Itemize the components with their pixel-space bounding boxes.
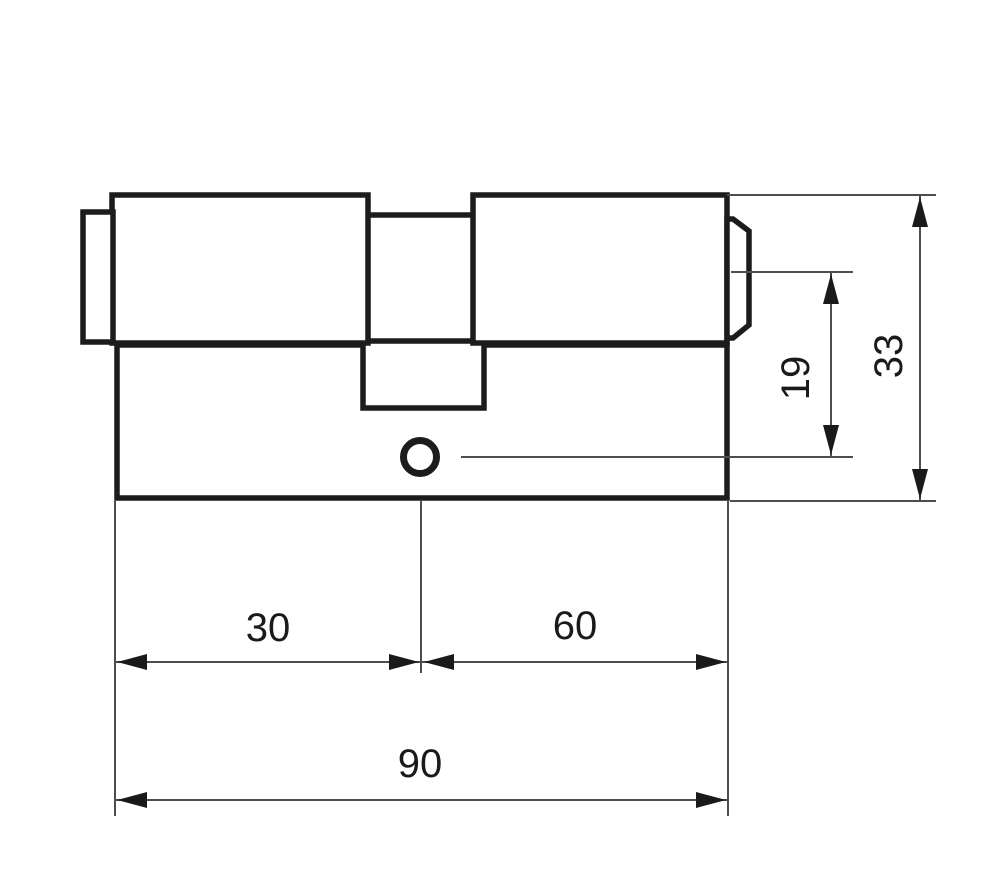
right-clip-tab <box>727 219 749 338</box>
right-barrel-outline <box>473 195 727 343</box>
screw-hole-circle <box>404 441 437 474</box>
dim90-label: 90 <box>398 742 443 786</box>
dim19-label: 19 <box>774 356 818 401</box>
left-clip-tab <box>83 212 113 342</box>
left-barrel-outline <box>112 195 368 343</box>
drawing-canvas: 30 60 90 19 33 <box>0 0 997 878</box>
dim30-label: 30 <box>246 606 291 650</box>
cam-notch-outline <box>363 341 484 408</box>
dim33-label: 33 <box>867 334 911 379</box>
dim60-label: 60 <box>553 604 598 648</box>
cylinder-dimension-drawing: 30 60 90 19 33 <box>0 0 997 878</box>
